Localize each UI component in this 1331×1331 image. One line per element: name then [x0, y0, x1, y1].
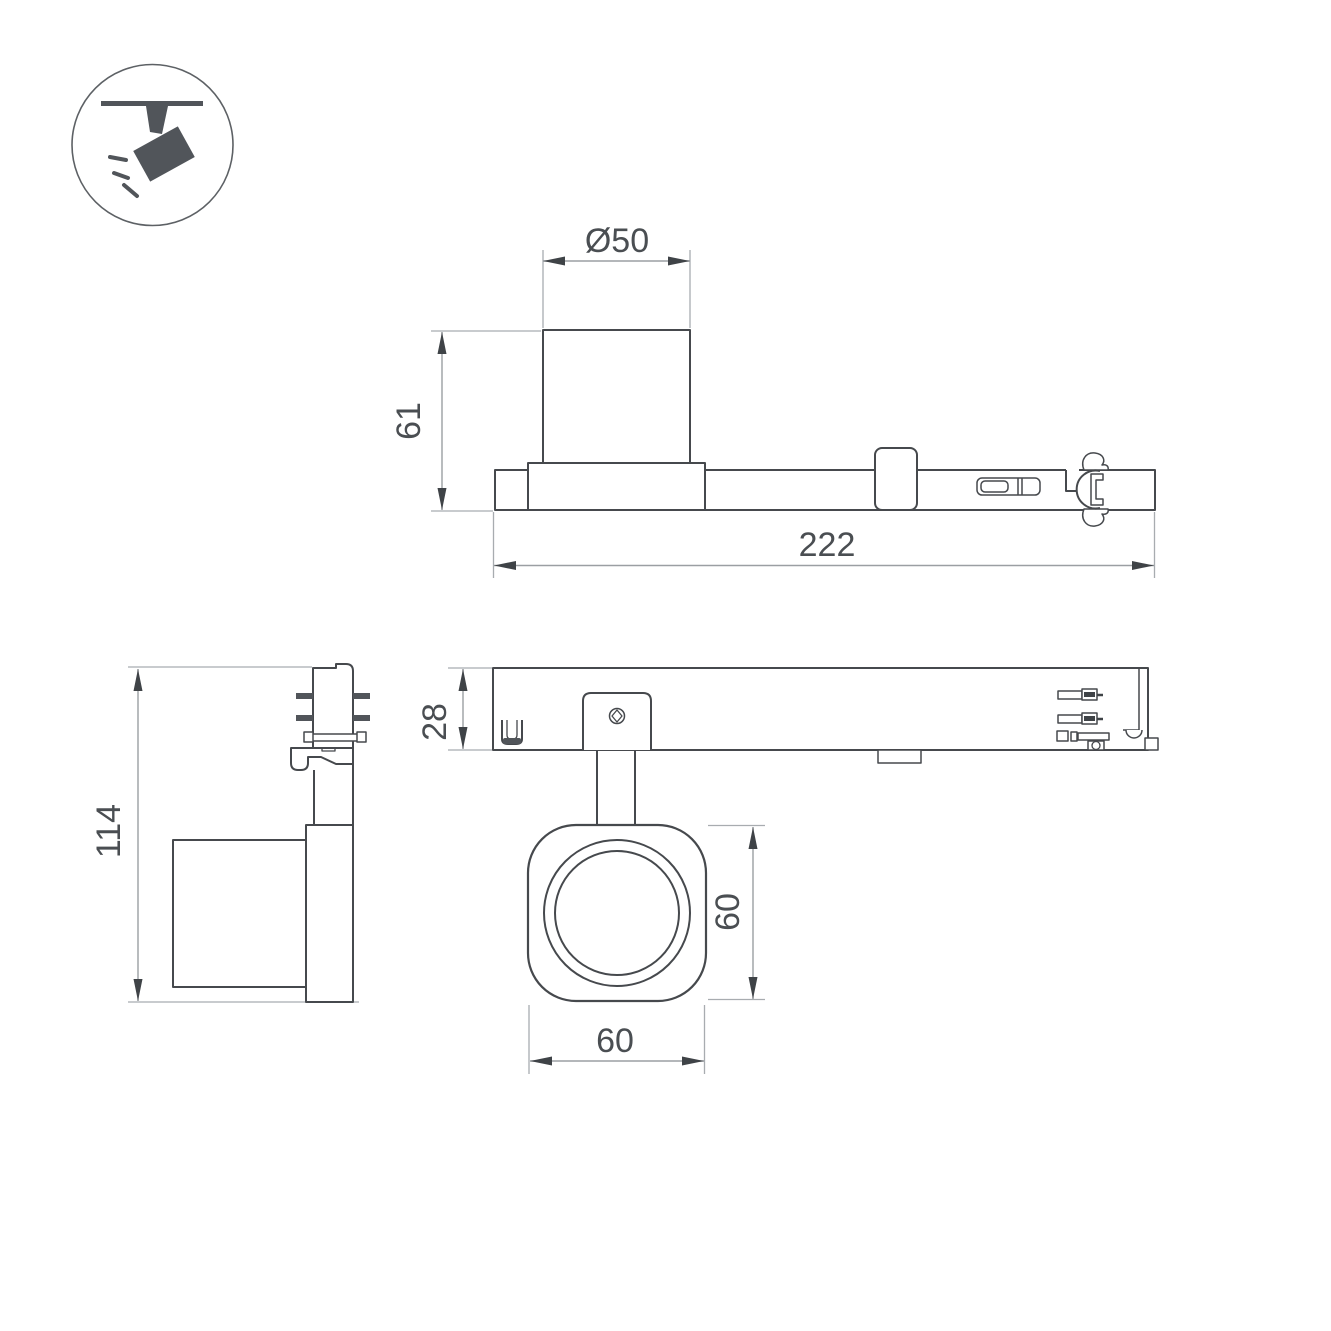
view-side-elevation: Ø50 61 222 [390, 222, 1155, 578]
adapter-block [875, 448, 917, 510]
stem-lines [597, 750, 635, 827]
dim-label-lens-width: 60 [596, 1022, 634, 1060]
view-side-profile: 114 [90, 664, 370, 1002]
adapter-base-profile [313, 757, 353, 764]
latch-part [1071, 732, 1077, 741]
extension-lines [431, 250, 1155, 578]
prong [296, 693, 313, 699]
latch-wing-bottom [1083, 509, 1108, 526]
slider-switch [977, 478, 1040, 495]
view-lens-front: 60 60 [528, 825, 765, 1074]
dim-label-head-height: 61 [390, 402, 428, 440]
dim-label-rail-height: 28 [416, 703, 454, 741]
legend-icon [72, 65, 233, 226]
contact-pin [1058, 713, 1103, 724]
collar-plate [304, 732, 366, 742]
extension-lines [448, 668, 492, 750]
latch-tab [1145, 738, 1158, 750]
pin-body [1058, 715, 1082, 723]
collar-tab [357, 732, 366, 742]
collar-bar [305, 734, 365, 741]
latch-part [1057, 731, 1068, 741]
icon-ceiling-bar [101, 101, 203, 106]
pin-body [1058, 691, 1082, 699]
pin-contact [1084, 692, 1095, 697]
dim-label-lens-height: 60 [709, 893, 747, 931]
lamp-head-column [306, 825, 353, 1002]
slider-knob [981, 481, 1008, 492]
rail-notch [878, 750, 921, 763]
latch-part [1078, 733, 1109, 740]
collar-tab [304, 732, 313, 742]
spring-hook [291, 748, 313, 770]
prong [353, 715, 370, 721]
clip-base [503, 738, 521, 744]
drawing-canvas: Ø50 61 222 [0, 0, 1331, 1331]
view-plan: 28 [416, 668, 1158, 827]
dim-label-total-height: 114 [90, 804, 128, 858]
contact-pin [1058, 689, 1103, 700]
prong [296, 715, 313, 721]
latch-wing-top [1083, 453, 1108, 470]
dim-label-total-length: 222 [799, 526, 856, 564]
head-cylinder [543, 330, 690, 463]
stem-lines [314, 748, 353, 826]
latch-pivot-hole [1092, 742, 1100, 750]
dimension-drawing: Ø50 61 222 [0, 0, 1331, 1331]
dim-label-head-diameter: Ø50 [585, 222, 649, 260]
prong [353, 693, 370, 699]
lamp-head-body [173, 840, 306, 987]
head-collar [528, 463, 705, 510]
pin-contact [1084, 716, 1095, 721]
